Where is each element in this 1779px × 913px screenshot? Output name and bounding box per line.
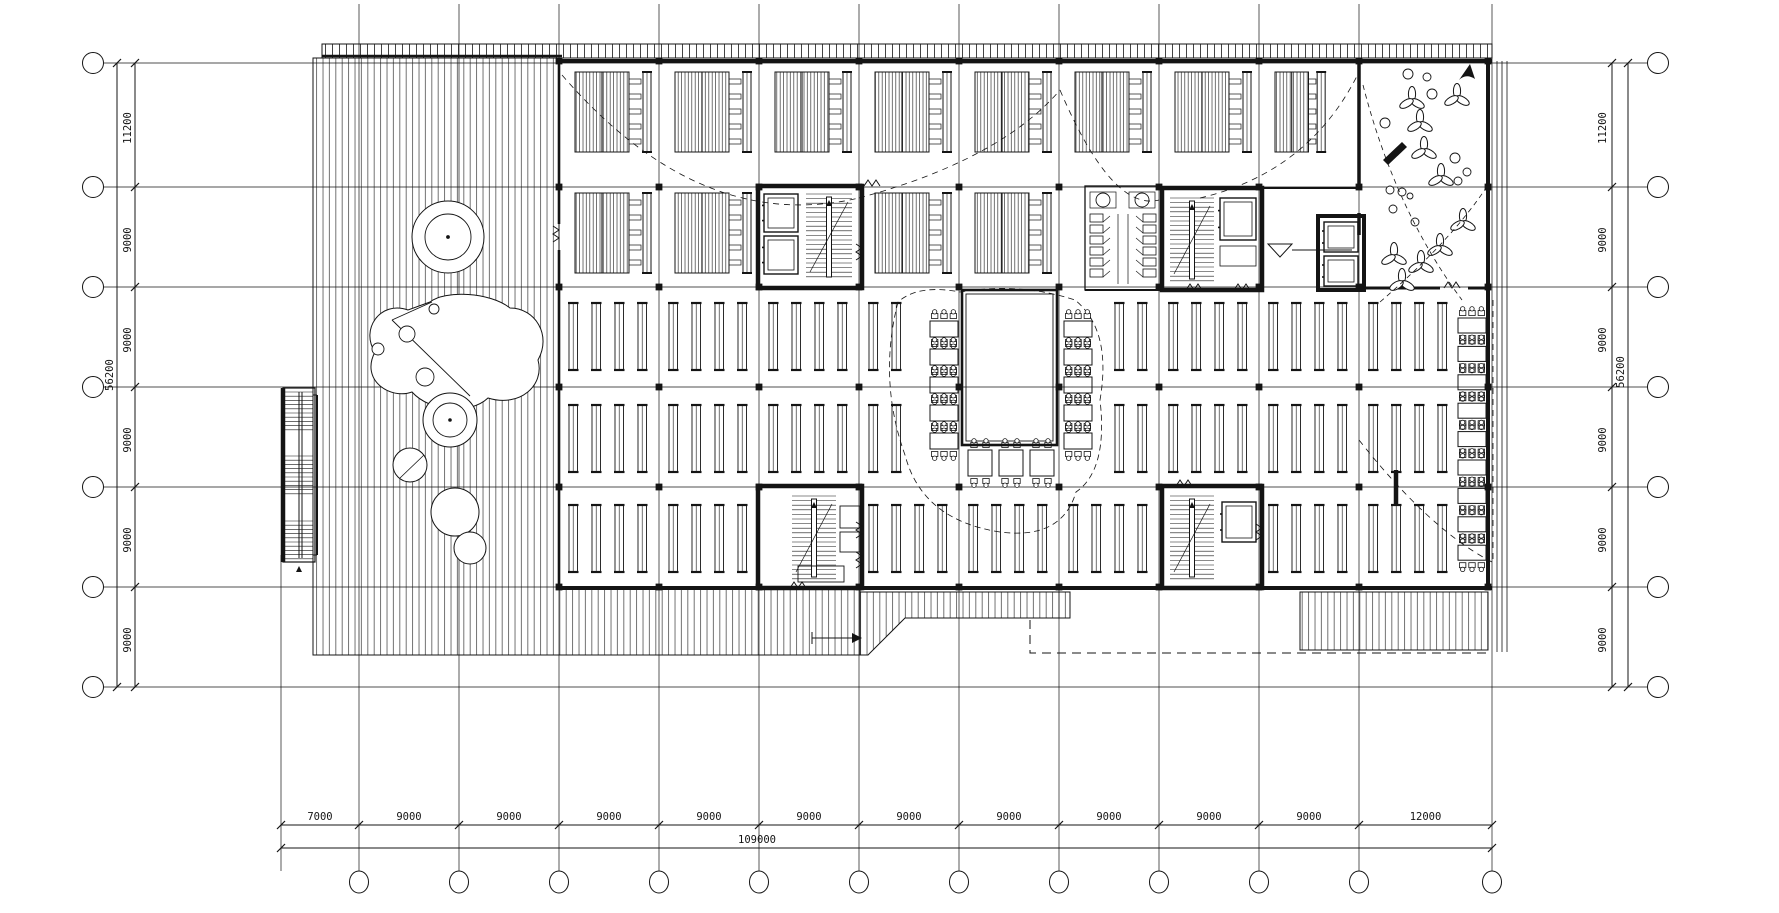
south-deck-band (860, 592, 1070, 655)
column-dot (1156, 58, 1163, 65)
column-dot (1485, 584, 1492, 591)
column-dot (956, 184, 963, 191)
courtyard-garden (1363, 64, 1488, 302)
grid-bubble (1250, 871, 1269, 893)
stair-core-a (758, 180, 880, 288)
dimension-label: 9000 (896, 811, 921, 823)
stone-icon (1454, 177, 1462, 185)
column-dot (856, 58, 863, 65)
dimension-label: 9000 (122, 527, 134, 552)
column-dot (1056, 58, 1063, 65)
tree-canopy (370, 294, 543, 409)
column-dot (556, 284, 563, 291)
dimension-label: 9000 (696, 811, 721, 823)
grid-bubble (350, 871, 369, 893)
shrub-icon (1398, 87, 1426, 111)
dimension-left: 112009000900090009000900056200 (104, 59, 139, 691)
dimension-label: 11200 (1597, 112, 1609, 144)
grid-bubble (1648, 677, 1669, 698)
dimension-label: 9000 (122, 427, 134, 452)
door-swing-icon (864, 180, 880, 186)
column-dot (556, 58, 563, 65)
stair-core-b (1162, 188, 1262, 290)
column-dot (956, 484, 963, 491)
stone-icon (1407, 193, 1413, 199)
column-dot (1056, 484, 1063, 491)
dimension-label: 7000 (307, 811, 332, 823)
stone-icon (1463, 168, 1471, 176)
north-arrow-icon (1459, 64, 1475, 80)
column-dot (1356, 58, 1363, 65)
grid-bubble (850, 871, 869, 893)
stone-icon (1450, 153, 1460, 163)
shrub-icon (1449, 209, 1477, 233)
grid-bubble (83, 277, 104, 298)
stone-icon (1386, 186, 1394, 194)
stone-icon (1403, 69, 1413, 79)
column-dot (1056, 184, 1063, 191)
shrub-icon (1406, 110, 1434, 134)
column-dot (756, 384, 763, 391)
dimension-label: 9000 (1296, 811, 1321, 823)
grid-bubble (1050, 871, 1069, 893)
grid-bubble (1648, 377, 1669, 398)
grid-bubble (83, 677, 104, 698)
grid-bubble (1648, 277, 1669, 298)
grid-bubble (1483, 871, 1502, 893)
column-dot (556, 484, 563, 491)
grid-bubble (650, 871, 669, 893)
atrium-void (889, 288, 1102, 533)
drawing-sheet: 1120090009000900090009000562001120090009… (0, 0, 1779, 913)
dimension-label: 9000 (396, 811, 421, 823)
dimension-label: 56200 (104, 359, 116, 391)
column-dot (1356, 584, 1363, 591)
dimension-label: 12000 (1410, 811, 1442, 823)
column-dot (1356, 184, 1363, 191)
dimension-label: 9000 (1096, 811, 1121, 823)
dimension-label: 9000 (122, 327, 134, 352)
floor-plan-canvas: 1120090009000900090009000562001120090009… (0, 0, 1779, 913)
level-marker-icon (1268, 244, 1292, 257)
column-dot (656, 58, 663, 65)
column-dot (1256, 384, 1263, 391)
column-dot (656, 584, 663, 591)
dimension-label: 9000 (496, 811, 521, 823)
column-dot (1356, 484, 1363, 491)
grid-bubble (1648, 477, 1669, 498)
shrub-icon (1427, 164, 1455, 188)
annotation-arcs (562, 72, 1492, 653)
stone-icon (1427, 89, 1437, 99)
dimension-label: 9000 (1597, 627, 1609, 652)
grid-bubble (550, 871, 569, 893)
north-bookstacks (575, 72, 1326, 273)
grid-bubble (83, 577, 104, 598)
column-dot (556, 184, 563, 191)
stone-icon (1389, 205, 1397, 213)
elevator-pair (1318, 216, 1364, 290)
column-dot (556, 584, 563, 591)
stair-core-e (1162, 480, 1262, 588)
shrub-icon (1443, 84, 1471, 108)
bench-icon (1383, 142, 1407, 165)
column-dot (1485, 284, 1492, 291)
east-deck-band (1300, 592, 1488, 650)
column-dot (756, 58, 763, 65)
shrub-icon (1410, 137, 1438, 161)
grid-bubble (1648, 577, 1669, 598)
column-dot (1485, 58, 1492, 65)
dimension-bottom: 7000900090009000900090009000900090009000… (277, 811, 1496, 852)
column-dot (656, 484, 663, 491)
dimension-label: 9000 (122, 227, 134, 252)
grid-bubble (1648, 177, 1669, 198)
dimension-label: 9000 (1597, 427, 1609, 452)
column-dot (1356, 384, 1363, 391)
wc-block (1085, 186, 1161, 290)
dimension-label: 9000 (996, 811, 1021, 823)
column-dot (1056, 584, 1063, 591)
reading-tables (930, 307, 1486, 572)
column-dot (956, 58, 963, 65)
stair-core-d (758, 486, 862, 588)
grid-bubble (1648, 53, 1669, 74)
column-dot (656, 384, 663, 391)
grid-bubble (83, 377, 104, 398)
column-dot (1256, 58, 1263, 65)
column-dot (556, 384, 563, 391)
dimension-label: 9000 (1597, 227, 1609, 252)
dimension-label: 9000 (596, 811, 621, 823)
dimension-label: 56200 (1615, 356, 1627, 388)
dimension-label: 9000 (1196, 811, 1221, 823)
shrub-icon (1380, 243, 1408, 267)
column-dot (1485, 184, 1492, 191)
stone-icon (1411, 218, 1419, 226)
dimension-label: 9000 (796, 811, 821, 823)
column-dot (656, 184, 663, 191)
void-outline-dashed (889, 288, 1102, 533)
hall-bookshelves (568, 303, 1448, 572)
dimension-label: 109000 (738, 834, 776, 846)
grid-bubble (1350, 871, 1369, 893)
grid-bubble (750, 871, 769, 893)
dimension-label: 11200 (122, 112, 134, 144)
dimension-label: 9000 (1597, 327, 1609, 352)
grid-bubble (950, 871, 969, 893)
grid-bubble (83, 177, 104, 198)
external-stair (283, 388, 317, 572)
dimension-right: 112009000900090009000900056200 (1597, 59, 1632, 691)
column-dot (656, 284, 663, 291)
stone-icon (1380, 118, 1390, 128)
column-dot (856, 384, 863, 391)
grid-bubble (1150, 871, 1169, 893)
grid-bubble (83, 477, 104, 498)
canopy-band (322, 44, 1492, 58)
dimension-label: 9000 (122, 627, 134, 652)
dimension-label: 9000 (1597, 527, 1609, 552)
column-dot (956, 584, 963, 591)
stone-icon (1423, 73, 1431, 81)
grid-bubble (450, 871, 469, 893)
grid-bubble (83, 53, 104, 74)
column-dot (1156, 384, 1163, 391)
